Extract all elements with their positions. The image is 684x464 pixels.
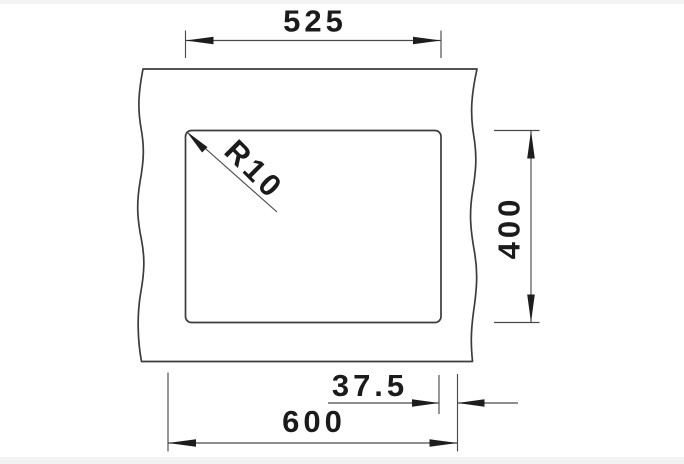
dim-400-arrow-bottom (527, 295, 535, 323)
dim-525-arrow-right (413, 37, 441, 45)
dim-525-arrow-left (186, 37, 214, 45)
bottom-gray-strip (0, 457, 684, 464)
dim-600-arrow-right (430, 439, 458, 446)
dim-600-label: 600 (282, 404, 346, 439)
dim-37-5-extension-lines (439, 374, 458, 452)
dim-400-label: 400 (492, 196, 527, 260)
sink-cutout-technical-drawing: 525 400 37.5 600 R10 (0, 0, 684, 464)
dim-37-5-arrow-left (412, 399, 439, 406)
radius-arrowhead (186, 131, 207, 152)
countertop-outline (138, 69, 477, 362)
dim-600-arrow-left (168, 439, 196, 446)
dim-37-5-arrow-right (458, 399, 485, 406)
drawing-svg: 525 400 37.5 600 R10 (0, 0, 684, 464)
dim-400-arrow-top (527, 131, 535, 159)
dim-37-5-label: 37.5 (332, 368, 408, 403)
dim-525-label: 525 (283, 4, 347, 39)
